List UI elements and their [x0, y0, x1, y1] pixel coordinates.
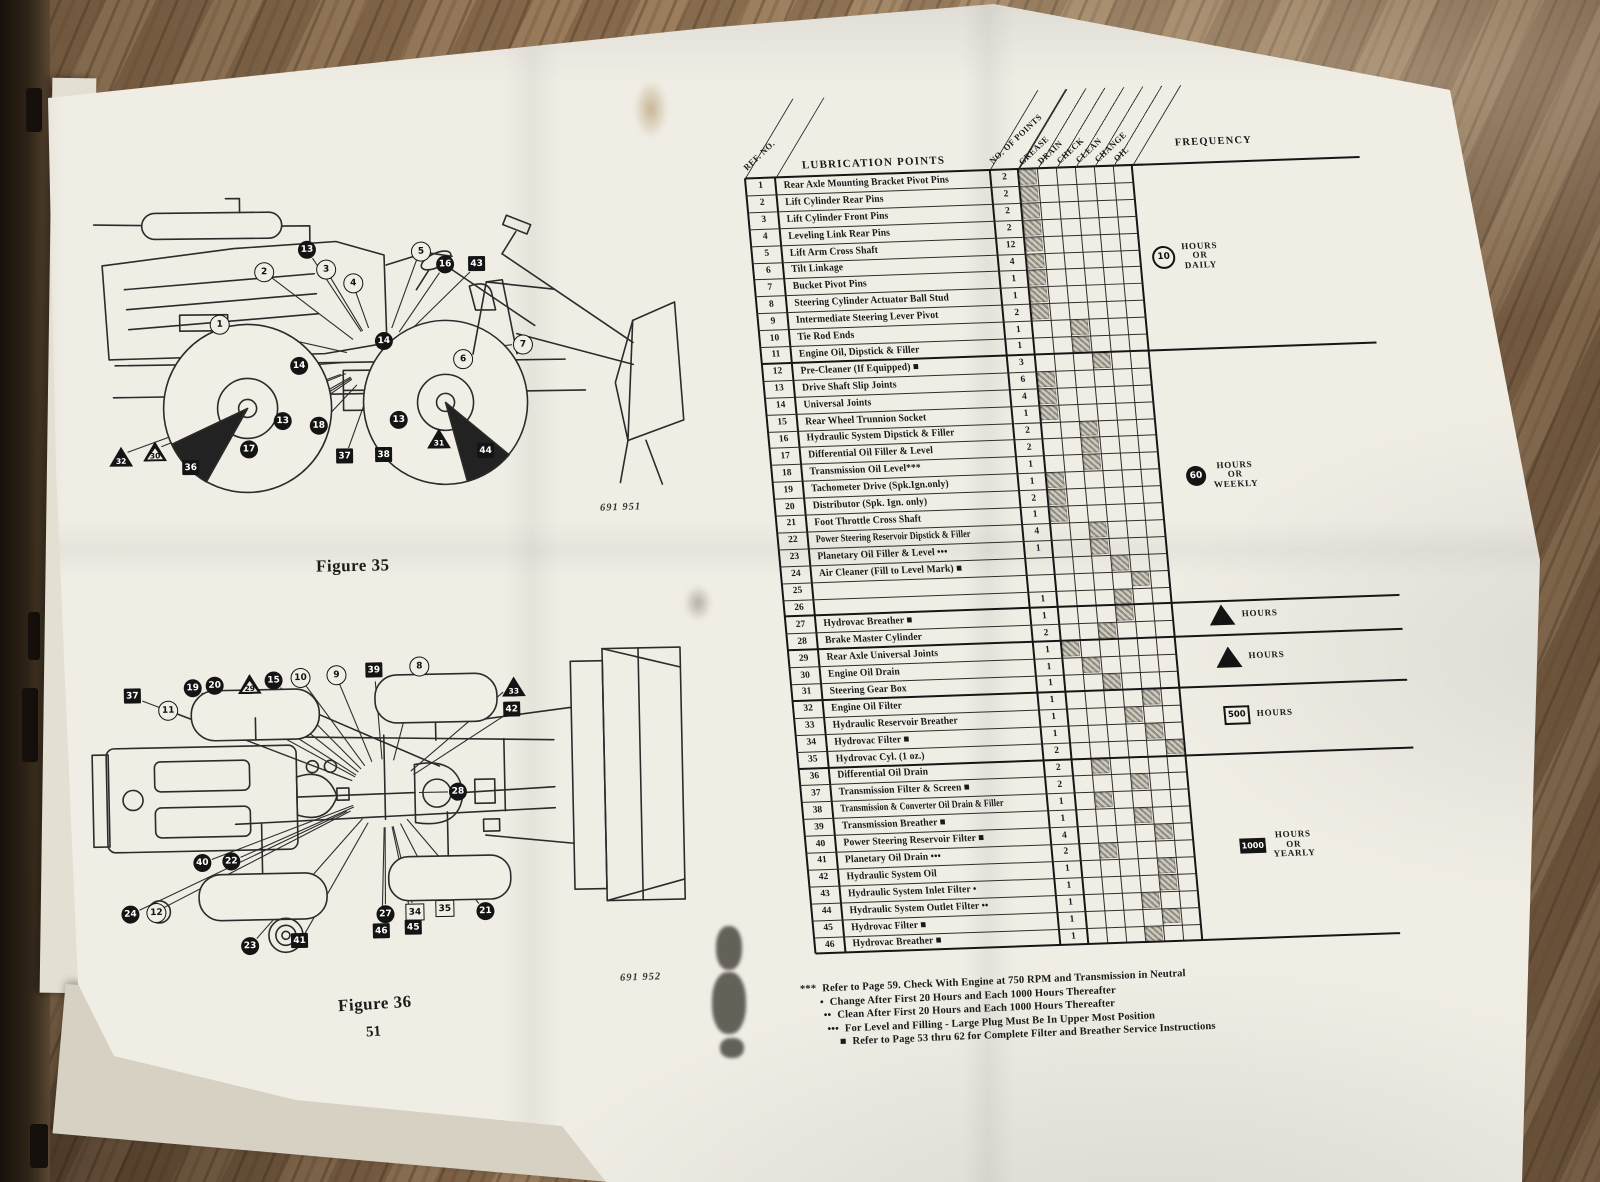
ref-no-cell: 21	[776, 515, 808, 533]
points-cell	[1025, 557, 1055, 575]
service-mark-grease	[1040, 405, 1058, 420]
ref-no-cell: 11	[760, 346, 792, 364]
service-mark-change	[1159, 875, 1177, 890]
points-cell: 1	[1005, 338, 1035, 356]
frequency-value: 240	[1216, 658, 1243, 667]
frequency-label: HOURS OR YEARLY	[1272, 829, 1317, 859]
ref-no-cell: 30	[789, 666, 821, 684]
ref-no-cell: 4	[750, 228, 782, 246]
service-mark-grease	[1031, 304, 1049, 319]
points-cell: 1	[1047, 793, 1077, 811]
ref-no-cell: 14	[765, 397, 797, 415]
lubrication-points-header: LUBRICATION POINTS	[801, 155, 945, 172]
callout-marker-30: 30	[143, 441, 167, 461]
ref-no-cell: 26	[783, 599, 815, 617]
callout-marker-16: 16	[436, 255, 454, 273]
service-mark-grease	[1037, 372, 1055, 387]
ink-smudge	[720, 1038, 744, 1058]
ref-no-cell: 34	[796, 734, 828, 752]
service-mark-check	[1091, 539, 1109, 554]
lub-point-label: Planetary Oil Drain •••	[845, 851, 942, 865]
points-cell: 1	[1036, 675, 1066, 693]
service-mark-change	[1155, 824, 1173, 839]
ref-no-cell: 6	[753, 262, 785, 280]
points-cell: 1	[1056, 894, 1086, 912]
ink-smudge	[712, 972, 746, 1034]
points-cell: 2	[1019, 489, 1049, 507]
frequency-section-240h: 240HOURS	[1215, 645, 1286, 668]
lub-point-label: Hydraulic Reservoir Breather	[832, 715, 958, 730]
ref-no-cell: 12	[762, 363, 794, 381]
service-mark-grease	[1028, 270, 1046, 285]
frequency-label: HOURS	[1248, 650, 1285, 661]
points-cell: 1	[1024, 540, 1054, 558]
points-cell: 1	[1020, 506, 1050, 524]
service-mark-grease	[1019, 169, 1037, 184]
lub-point-label: Bucket Pivot Pins	[792, 279, 867, 293]
lub-point-label: Leveling Link Rear Pins	[788, 227, 891, 242]
callout-marker-33: 33	[502, 676, 526, 696]
ref-no-cell: 17	[770, 447, 802, 465]
ref-no-cell: 16	[768, 430, 800, 448]
callout-marker-39: 39	[365, 662, 382, 677]
lub-point-label: Engine Oil Filter	[831, 700, 903, 713]
lub-point-label: Differential Oil Filler & Level	[808, 445, 934, 460]
callout-marker-4: 4	[343, 273, 363, 293]
lub-point-label: Differential Oil Drain	[837, 767, 929, 781]
service-mark-grease	[1022, 203, 1040, 218]
points-cell: 2	[1044, 759, 1074, 777]
ref-no-cell: 22	[777, 531, 809, 549]
points-cell	[1027, 574, 1057, 592]
service-mark-oil	[1166, 739, 1184, 754]
frequency-symbol-500: 500	[1223, 705, 1251, 725]
service-mark-clean	[1111, 555, 1129, 570]
callout-marker-14: 14	[290, 357, 308, 375]
points-cell: 12	[996, 236, 1026, 254]
callout-marker-37: 37	[336, 448, 353, 463]
page-number: 51	[365, 1024, 381, 1042]
lub-point-label: Lift Cylinder Front Pins	[786, 210, 889, 225]
ref-no-cell: 35	[797, 751, 829, 769]
callout-marker-38: 38	[375, 447, 392, 462]
frequency-value: 120	[1209, 616, 1236, 625]
lub-point-label: Lift Arm Cross Shaft	[789, 244, 878, 258]
lub-point-label: Intermediate Steering Lever Pivot	[795, 310, 938, 326]
callout-marker-32: 32	[109, 447, 133, 467]
callout-marker-7: 7	[513, 334, 533, 354]
frequency-label: HOURS OR WEEKLY	[1212, 459, 1259, 489]
figure-35-side-view-diagram: 132345164311414671318131731323036373844	[83, 192, 686, 508]
lub-point-label: Drive Shaft Slip Joints	[802, 379, 897, 393]
page-edge-mark	[26, 88, 42, 132]
service-mark-check	[1103, 674, 1121, 689]
service-mark-change	[1145, 723, 1163, 738]
lub-point-label: Air Cleaner (Fill to Level Mark) ■	[818, 563, 962, 579]
lub-point-label: Hydrovac Cyl. (1 oz.)	[835, 750, 925, 764]
service-mark-drain	[1092, 759, 1110, 774]
callout-marker-29: 29	[237, 674, 261, 694]
points-cell: 2	[994, 220, 1024, 238]
service-mark-grease	[1025, 237, 1043, 252]
callout-marker-43: 43	[468, 256, 485, 271]
lub-point-label: Hydrovac Breather ■	[852, 936, 942, 950]
lub-point-label: Engine Oil Drain	[828, 666, 901, 679]
ref-no-cell: 10	[759, 329, 791, 347]
service-mark-grease	[1027, 254, 1045, 269]
ref-no-cell: 41	[806, 852, 838, 870]
frequency-label: HOURS	[1256, 708, 1293, 719]
ref-no-cell: 33	[794, 717, 826, 735]
ref-no-cell: 25	[782, 582, 814, 600]
service-mark-clean	[1093, 353, 1111, 368]
callout-marker-6: 6	[453, 349, 473, 369]
points-cell: 2	[990, 169, 1020, 187]
ref-no-cell: 40	[805, 835, 837, 853]
ref-no-cell: 31	[791, 683, 823, 701]
frequency-section-1000h: 1000HOURS OR YEARLY	[1239, 829, 1317, 860]
frequency-symbol-1000: 1000	[1239, 838, 1266, 854]
callout-marker-13: 13	[390, 411, 408, 429]
lub-point-label: Tachometer Drive (Spk.Ign.only)	[811, 479, 949, 495]
service-mark-change	[1158, 858, 1176, 873]
footnote-symbol: •	[790, 996, 825, 1011]
points-cell: 1	[1030, 607, 1060, 625]
service-mark-check	[1072, 337, 1090, 352]
callout-marker-37: 37	[124, 688, 141, 703]
service-mark-check	[1083, 455, 1101, 470]
frequency-section-500h: 500HOURS	[1223, 703, 1294, 724]
ref-no-cell: 18	[771, 464, 803, 482]
ref-no-cell: 23	[779, 548, 811, 566]
ref-no-cell: 38	[802, 801, 834, 819]
lub-point-label: Foot Throttle Cross Shaft	[814, 514, 922, 529]
service-mark-change	[1142, 689, 1160, 704]
frequency-section-60h: 60HOURS OR WEEKLY	[1185, 459, 1259, 490]
frequency-symbol-10: 10	[1151, 245, 1176, 269]
points-cell: 1	[1016, 456, 1046, 474]
ref-no-cell: 27	[785, 616, 817, 634]
figure-36-photo-code: 691 952	[620, 971, 661, 983]
figure-36-top-view-diagram: 3711192029151093983342284022241227343521…	[82, 619, 709, 972]
points-cell: 6	[1008, 371, 1038, 389]
ref-no-cell: 19	[773, 481, 805, 499]
service-mark-clean	[1145, 926, 1163, 941]
lub-point-label: Planetary Oil Filler & Level •••	[817, 546, 948, 562]
frequency-symbol-60: 60	[1185, 466, 1207, 487]
callout-marker-2: 2	[254, 262, 274, 282]
frequency-label: HOURS	[1241, 608, 1278, 619]
service-mark-clean	[1131, 774, 1149, 789]
points-cell: 4	[997, 253, 1027, 271]
figure-35-caption: Figure 35	[316, 555, 390, 576]
callout-number: 33	[502, 687, 526, 696]
lub-point-label: Transmission Breather ■	[842, 817, 947, 832]
ref-no-cell: 5	[751, 245, 783, 263]
lub-point-label: Pre-Cleaner (If Equipped) ■	[800, 361, 919, 376]
points-cell: 2	[1013, 422, 1043, 440]
lub-point-label: Rear Axle Universal Joints	[826, 648, 939, 663]
lub-point-label: Universal Joints	[803, 397, 872, 410]
ref-no-cell: 20	[774, 498, 806, 516]
ref-no-cell: 39	[803, 818, 835, 836]
points-cell: 4	[1010, 388, 1040, 406]
lub-point-label: Transmission Filter & Screen ■	[838, 782, 970, 798]
callout-marker-46: 46	[373, 923, 390, 938]
service-mark-drain	[1082, 658, 1100, 673]
ref-no-cell: 8	[756, 295, 788, 313]
service-mark-change	[1162, 908, 1180, 923]
points-cell: 1	[1033, 641, 1063, 659]
frequency-header: FREQUENCY	[1174, 135, 1252, 149]
paper-stain	[684, 585, 712, 621]
ref-no-cell: 24	[780, 565, 812, 583]
points-cell: 1	[1037, 692, 1067, 710]
callout-marker-14: 14	[375, 332, 393, 350]
points-cell: 2	[1031, 624, 1061, 642]
points-cell: 2	[1042, 742, 1072, 760]
service-mark-grease	[1020, 186, 1038, 201]
ref-no-cell: 44	[811, 902, 843, 920]
ref-no-cell: 42	[808, 869, 840, 887]
lub-point-label: Hydrovac Breather ■	[823, 615, 913, 629]
points-cell: 1	[1017, 472, 1047, 490]
callout-number: 29	[238, 685, 262, 694]
ref-no-cell: 37	[800, 784, 832, 802]
points-cell: 2	[993, 203, 1023, 221]
lub-point-label: Lift Cylinder Rear Pins	[785, 194, 884, 208]
callout-marker-36: 36	[182, 460, 199, 475]
points-cell: 1	[1004, 321, 1034, 339]
points-cell: 1	[1059, 928, 1089, 946]
points-cell: 1	[1057, 911, 1087, 929]
callout-number: 32	[109, 458, 133, 466]
callout-marker-34: 34	[405, 903, 424, 920]
points-cell: 2	[1002, 304, 1032, 322]
frequency-label: HOURS OR DAILY	[1181, 241, 1220, 271]
ref-no-cell: 32	[793, 700, 825, 718]
points-cell: 1	[1048, 810, 1078, 828]
footnote-symbol: •••	[805, 1022, 840, 1037]
page-edge-mark	[28, 612, 40, 660]
service-mark-check	[1098, 623, 1116, 638]
points-cell: 1	[1011, 405, 1041, 423]
callout-marker-13: 13	[298, 241, 316, 259]
lub-point-label: Distributor (Spk. Ign. only)	[812, 496, 927, 511]
lubrication-points-table: REF. NO.NO. OF POINTSGREASEDRAINCHECKCLE…	[700, 43, 1576, 1128]
frequency-section-10h: 10HOURS OR DAILY	[1151, 241, 1220, 272]
service-mark-grease	[1047, 473, 1065, 488]
ref-no-cell: 7	[754, 279, 786, 297]
lub-point-label: Hydrovac Filter ■	[834, 734, 910, 748]
service-mark-drain	[1099, 843, 1117, 858]
lub-point-label: Steering Gear Box	[829, 683, 907, 697]
service-mark-grease	[1050, 506, 1068, 521]
points-cell: 4	[1022, 523, 1052, 541]
page-edge-mark	[30, 1124, 48, 1168]
book-spine-edge	[0, 0, 50, 1182]
points-cell: 3	[1007, 354, 1037, 372]
service-mark-clean	[1125, 707, 1143, 722]
callout-marker-31: 31	[427, 428, 451, 448]
lub-point-label: Transmission Oil Level***	[809, 463, 921, 478]
lub-point-label: Hydraulic System Outlet Filter ••	[849, 900, 989, 916]
callout-marker-45: 45	[405, 919, 422, 934]
callout-marker-44: 44	[477, 443, 494, 458]
points-cell: 2	[991, 186, 1021, 204]
callout-marker-42: 42	[503, 701, 520, 716]
service-mark-check	[1071, 320, 1089, 335]
service-mark-grease	[1023, 220, 1041, 235]
points-cell: 2	[1014, 439, 1044, 457]
ref-no-cell: 15	[766, 413, 798, 431]
lub-point-label: Brake Master Cylinder	[825, 632, 923, 646]
figure-35-photo-code: 691 951	[600, 501, 641, 513]
service-mark-grease	[1062, 641, 1080, 656]
points-cell: 1	[1054, 877, 1084, 895]
ref-no-cell: 46	[814, 936, 846, 954]
lub-point-label: Tie Rod Ends	[797, 330, 855, 343]
frequency-symbol-120: 120	[1208, 604, 1236, 626]
callout-marker-17: 17	[240, 440, 258, 458]
page-edge-mark	[22, 688, 38, 762]
service-mark-grease	[1048, 490, 1066, 505]
frequency-section-120h: 120HOURS	[1208, 602, 1279, 625]
ref-no-cell: 29	[788, 649, 820, 667]
lub-point-label: Hydraulic System Inlet Filter •	[848, 884, 977, 899]
service-mark-check	[1089, 522, 1107, 537]
lub-point-label: Hydrovac Filter ■	[851, 919, 927, 933]
ink-smudge	[716, 926, 742, 970]
service-mark-check	[1080, 421, 1098, 436]
lub-point-label: Engine Oil, Dipstick & Filler	[799, 344, 920, 359]
points-cell: 2	[1045, 776, 1075, 794]
service-mark-grease	[1039, 388, 1057, 403]
callout-number: 30	[143, 452, 167, 460]
ref-no-cell: 3	[748, 211, 780, 229]
ref-no-cell: 36	[799, 767, 831, 785]
ref-no-cell: 45	[812, 919, 844, 937]
service-mark-check	[1081, 438, 1099, 453]
footnote-symbol: ••	[797, 1009, 832, 1024]
service-mark-drain	[1095, 792, 1113, 807]
service-mark-clean	[1116, 606, 1134, 621]
frequency-symbol-240: 240	[1215, 646, 1243, 668]
service-mark-change	[1132, 571, 1150, 586]
callout-marker-13: 13	[274, 412, 292, 430]
ref-no-cell: 9	[757, 312, 789, 330]
service-mark-grease	[1030, 287, 1048, 302]
service-mark-clean	[1134, 808, 1152, 823]
points-cell: 1	[1034, 658, 1064, 676]
figure-36-chassis-drawing	[82, 619, 709, 972]
callout-marker-41: 41	[291, 933, 308, 948]
footnote-symbol: ■	[812, 1036, 847, 1051]
ref-no-cell: 1	[745, 177, 777, 195]
points-cell: 4	[1050, 826, 1080, 844]
lub-point-label: Power Steering Reservoir Filter ■	[843, 833, 985, 849]
points-cell: 2	[1051, 843, 1081, 861]
callout-marker-5: 5	[411, 242, 431, 262]
callout-marker-1: 1	[210, 315, 230, 335]
points-cell: 1	[1039, 708, 1069, 726]
points-cell: 1	[1053, 860, 1083, 878]
callout-marker-35: 35	[435, 900, 454, 917]
points-cell: 1	[999, 270, 1029, 288]
points-cell: 1	[1001, 287, 1031, 305]
paper-stain	[634, 80, 668, 138]
footnote-symbol: ***	[782, 983, 817, 998]
service-mark-clean	[1142, 892, 1160, 907]
callout-marker-18: 18	[310, 417, 328, 435]
points-cell: 1	[1028, 590, 1058, 608]
service-mark-clean	[1114, 589, 1132, 604]
ref-no-cell: 28	[786, 633, 818, 651]
ref-no-cell: 2	[746, 194, 778, 212]
lub-point-label: Tilt Linkage	[791, 263, 844, 276]
lub-point-label: Rear Wheel Trunnion Socket	[805, 412, 927, 427]
ref-no-cell: 43	[809, 885, 841, 903]
lub-point-label: Hydraulic System Oil	[846, 868, 937, 882]
callout-number: 31	[427, 439, 451, 447]
points-cell: 1	[1040, 725, 1070, 743]
ref-no-cell: 13	[763, 380, 795, 398]
callout-marker-3: 3	[316, 260, 336, 280]
